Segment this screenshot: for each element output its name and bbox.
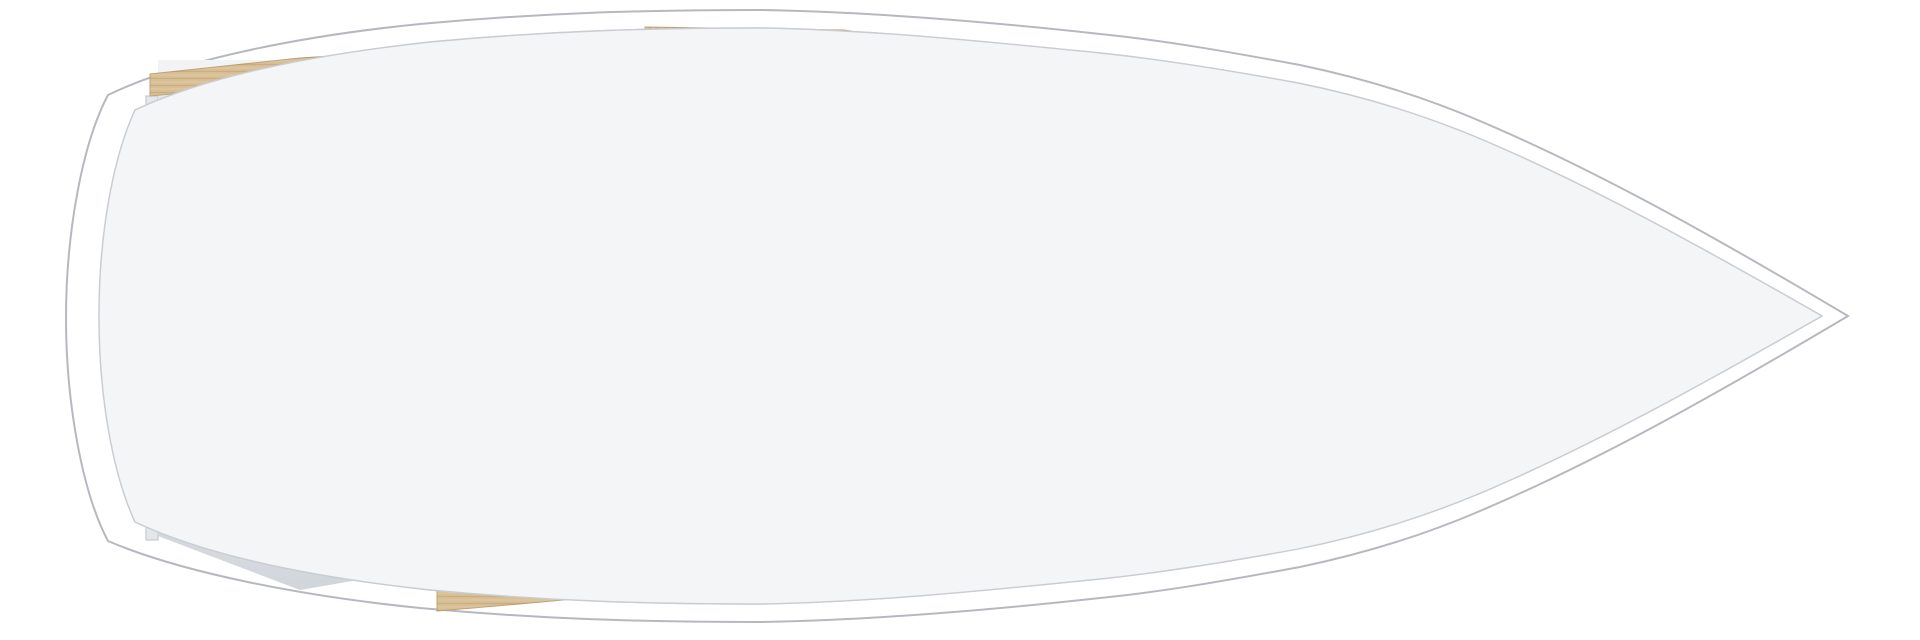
floor-plan-canvas	[0, 0, 1920, 640]
deck-edge-line	[99, 28, 1822, 604]
boat-floor-plan	[0, 0, 1920, 640]
